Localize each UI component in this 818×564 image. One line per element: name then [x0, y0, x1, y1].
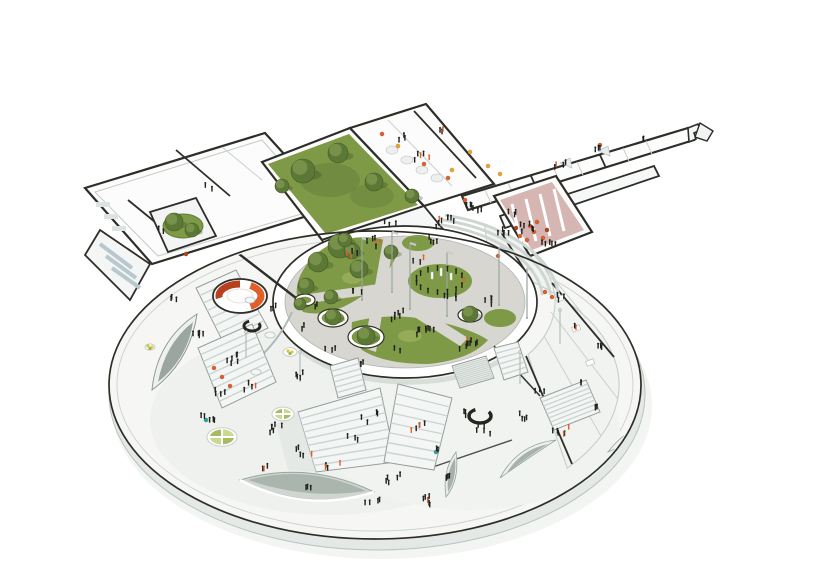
person-head	[214, 387, 216, 389]
tree-highlight	[299, 279, 309, 289]
person-head	[489, 431, 491, 433]
person-head	[441, 218, 443, 220]
tree-highlight	[166, 214, 177, 225]
person-head	[360, 414, 362, 416]
person-head	[423, 254, 425, 256]
person-head	[204, 182, 206, 184]
person-head	[461, 282, 463, 284]
person-head	[386, 474, 388, 476]
person-head	[212, 416, 214, 418]
person-head	[534, 388, 536, 390]
person-head	[303, 322, 305, 324]
person-head	[299, 375, 301, 377]
person-head	[314, 304, 316, 306]
person-head	[419, 422, 421, 424]
person-head	[459, 346, 461, 348]
tree-highlight	[276, 180, 285, 189]
person-head	[477, 208, 479, 210]
person-head	[334, 345, 336, 347]
person-head	[464, 409, 466, 411]
person-head	[477, 422, 479, 424]
person-head	[446, 266, 448, 268]
person-head	[594, 146, 596, 148]
person-head	[430, 238, 432, 240]
table-dot	[146, 344, 149, 347]
yellow-furniture-dot	[468, 150, 472, 154]
flagpole-base	[446, 315, 448, 317]
person-head	[316, 301, 318, 303]
person-head	[325, 462, 327, 464]
person-head	[476, 427, 478, 429]
person-head	[544, 241, 546, 243]
person-head	[311, 451, 313, 453]
person-head	[475, 341, 477, 343]
person-head	[403, 132, 405, 134]
person-head	[502, 226, 504, 228]
person-head	[428, 493, 430, 495]
person-head	[281, 422, 283, 424]
person-head	[442, 126, 444, 128]
person-head	[469, 202, 471, 204]
person-head	[364, 499, 366, 501]
person-head	[466, 337, 468, 339]
person-head	[524, 416, 526, 418]
person-head	[455, 268, 457, 270]
person-head	[236, 351, 238, 353]
person-head	[366, 238, 368, 240]
person-head	[372, 236, 374, 238]
person-head	[270, 306, 272, 308]
person-head	[562, 162, 564, 164]
person-head	[346, 250, 348, 252]
person-head	[295, 446, 297, 448]
person-head	[158, 225, 160, 227]
person-head	[552, 428, 554, 430]
person-head	[429, 326, 431, 328]
person-head	[507, 209, 509, 211]
person-head	[299, 451, 301, 453]
person-head	[162, 228, 164, 230]
person-head	[420, 152, 422, 154]
person-head	[388, 222, 390, 224]
person-head	[275, 302, 277, 304]
person-head	[399, 348, 401, 350]
person-head	[198, 330, 200, 332]
orange-furniture-dot	[446, 176, 450, 180]
person-head	[427, 497, 429, 499]
person-head	[375, 243, 377, 245]
person-head	[376, 411, 378, 413]
person-head	[428, 154, 430, 156]
person-head	[557, 297, 559, 299]
person-head	[455, 286, 457, 288]
person-head	[310, 485, 312, 487]
orange-furniture-dot	[422, 162, 426, 166]
yellow-furniture-dot	[498, 172, 502, 176]
tree-highlight	[186, 224, 195, 233]
person-head	[515, 209, 517, 211]
white-sculpture	[440, 268, 442, 276]
person-head	[563, 431, 565, 433]
light-pole-head	[299, 351, 302, 354]
person-head	[466, 341, 468, 343]
person-head	[274, 421, 276, 423]
table-dot	[288, 352, 291, 355]
person-head	[436, 238, 438, 240]
person-head	[483, 428, 485, 430]
person-head	[361, 289, 363, 291]
person-head	[557, 430, 559, 432]
person-head	[369, 499, 371, 501]
person-head	[255, 383, 257, 385]
person-head	[463, 277, 465, 279]
tree-highlight	[463, 307, 473, 317]
person-head	[388, 479, 390, 481]
tree-highlight	[329, 144, 341, 156]
person-head	[272, 305, 274, 307]
flagpole-base	[361, 299, 363, 301]
person-head	[356, 250, 358, 252]
yellow-furniture-dot	[396, 144, 400, 148]
person-head	[543, 388, 545, 390]
white-sculpture	[431, 272, 433, 279]
person-head	[271, 424, 273, 426]
person-head	[398, 137, 400, 139]
person-head	[417, 151, 419, 153]
person-head	[302, 369, 304, 371]
person-head	[415, 425, 417, 427]
round-table	[265, 332, 275, 338]
person-head	[439, 127, 441, 129]
person-head	[428, 234, 430, 236]
tree-highlight	[406, 190, 415, 199]
person-head	[476, 339, 478, 341]
person-head	[483, 422, 485, 424]
person-head	[446, 289, 448, 291]
person-head	[272, 427, 274, 429]
person-head	[379, 239, 381, 241]
person-head	[484, 297, 486, 299]
person-head	[520, 221, 522, 223]
person-head	[427, 288, 429, 290]
round-table	[465, 212, 475, 218]
person-head	[395, 220, 397, 222]
person-head	[414, 157, 416, 159]
person-head	[519, 410, 521, 412]
person-head	[354, 435, 356, 437]
round-table	[245, 297, 255, 303]
person-head	[436, 265, 438, 267]
person-head	[448, 473, 450, 475]
tree-highlight	[293, 160, 308, 175]
person-head	[601, 344, 603, 346]
person-head	[220, 391, 222, 393]
person-head	[295, 371, 297, 373]
kitchen-equipment	[431, 174, 443, 182]
person-head	[324, 464, 326, 466]
person-head	[175, 296, 177, 298]
tree-highlight	[326, 310, 336, 320]
person-head	[554, 241, 556, 243]
person-head	[269, 429, 271, 431]
person-head	[568, 424, 570, 426]
person-head	[438, 220, 440, 222]
architectural-rendering	[0, 0, 818, 564]
person-head	[556, 292, 558, 294]
orange-furniture-dot	[212, 366, 216, 370]
white-sculpture	[450, 273, 452, 280]
orange-furniture-dot	[463, 198, 467, 202]
person-head	[248, 380, 250, 382]
person-head	[555, 161, 557, 163]
person-head	[243, 387, 245, 389]
tree-highlight	[295, 298, 302, 305]
red-furniture-dot	[545, 228, 549, 232]
person-head	[424, 420, 426, 422]
person-head	[455, 292, 457, 294]
person-head	[595, 404, 597, 406]
person-head	[580, 380, 582, 382]
flagpole-base	[526, 317, 528, 319]
person-head	[422, 496, 424, 498]
person-head	[490, 301, 492, 303]
courtyard-lawn-east	[484, 309, 516, 327]
orange-furniture-dot	[518, 234, 522, 238]
person-head	[410, 427, 412, 429]
flagpole-base	[498, 304, 500, 306]
yellow-furniture-dot	[486, 164, 490, 168]
person-head	[266, 463, 268, 465]
person-head	[556, 428, 558, 430]
person-head	[200, 412, 202, 414]
person-head	[301, 326, 303, 328]
person-head	[366, 419, 368, 421]
person-head	[419, 259, 421, 261]
kitchen-equipment	[401, 156, 413, 164]
person-head	[465, 202, 467, 204]
person-head	[526, 414, 528, 416]
person-head	[427, 325, 429, 327]
person-head	[447, 214, 449, 216]
person-head	[551, 240, 553, 242]
person-head	[491, 295, 493, 297]
person-head	[393, 345, 395, 347]
person-head	[297, 444, 299, 446]
person-head	[532, 226, 534, 228]
person-head	[427, 267, 429, 269]
person-head	[231, 355, 233, 357]
person-head	[251, 384, 253, 386]
person-head	[171, 294, 173, 296]
person-head	[224, 389, 226, 391]
person-head	[394, 312, 396, 314]
person-head	[425, 326, 427, 328]
person-head	[599, 145, 601, 147]
person-head	[521, 416, 523, 418]
person-head	[360, 361, 362, 363]
person-head	[384, 218, 386, 220]
person-head	[574, 323, 576, 325]
person-head	[461, 272, 463, 274]
person-head	[412, 258, 414, 260]
person-head	[539, 386, 541, 388]
flagpole-base	[409, 308, 411, 310]
person-head	[399, 471, 401, 473]
person-head	[391, 316, 393, 318]
red-furniture-dot	[184, 252, 188, 256]
person-head	[192, 330, 194, 332]
person-head	[402, 308, 404, 310]
person-head	[418, 326, 420, 328]
orange-furniture-dot	[525, 238, 529, 242]
person-head	[450, 215, 452, 217]
tree-highlight	[325, 291, 334, 300]
person-head	[352, 288, 354, 290]
person-head	[435, 224, 437, 226]
person-head	[399, 313, 401, 315]
person-head	[327, 465, 329, 467]
flagpole-base	[391, 291, 393, 293]
light-pole-head	[245, 331, 248, 334]
person-head	[324, 346, 326, 348]
person-head	[357, 437, 359, 439]
library-shelf	[96, 202, 110, 207]
person-head	[508, 230, 510, 232]
tree-highlight	[339, 234, 348, 243]
library-shelf	[112, 226, 126, 231]
person-head	[565, 159, 567, 161]
person-head	[424, 494, 426, 496]
person-head	[429, 502, 431, 504]
person-head	[438, 216, 440, 218]
orange-furniture-dot	[380, 132, 384, 136]
person-head	[302, 453, 304, 455]
person-head	[643, 136, 645, 138]
person-head	[211, 186, 213, 188]
person-head	[226, 357, 228, 359]
person-head	[423, 151, 425, 153]
person-head	[480, 206, 482, 208]
person-head	[436, 445, 438, 447]
table-dot	[286, 349, 289, 352]
person-head	[554, 164, 556, 166]
kitchen-equipment	[416, 166, 428, 174]
person-head	[541, 239, 543, 241]
person-head	[597, 343, 599, 345]
person-head	[209, 417, 211, 419]
orange-furniture-dot	[228, 384, 232, 388]
person-head	[436, 289, 438, 291]
person-head	[396, 475, 398, 477]
table-dot	[148, 347, 151, 350]
person-head	[453, 218, 455, 220]
person-head	[433, 239, 435, 241]
person-head	[339, 460, 341, 462]
red-furniture-dot	[514, 226, 518, 230]
person-head	[215, 390, 217, 392]
person-head	[362, 359, 364, 361]
person-head	[379, 497, 381, 499]
person-head	[305, 484, 307, 486]
person-head	[521, 228, 523, 230]
orange-round-room	[213, 279, 267, 313]
person-head	[347, 433, 349, 435]
tree-highlight	[366, 174, 377, 185]
person-head	[446, 474, 448, 476]
person-head	[549, 239, 551, 241]
person-head	[416, 275, 418, 277]
tree-highlight	[309, 253, 321, 265]
person-head	[497, 230, 499, 232]
person-head	[433, 327, 435, 329]
library-shelf	[104, 214, 118, 219]
person-head	[331, 347, 333, 349]
person-head	[470, 337, 472, 339]
person-head	[397, 310, 399, 312]
person-head	[523, 223, 525, 225]
person-head	[563, 293, 565, 295]
person-head	[420, 270, 422, 272]
person-head	[202, 331, 204, 333]
light-pole-head	[519, 351, 522, 354]
person-head	[394, 314, 396, 316]
tree-highlight	[358, 328, 369, 339]
person-head	[237, 358, 239, 360]
person-head	[263, 466, 265, 468]
person-head	[443, 293, 445, 295]
yellow-furniture-dot	[450, 168, 454, 172]
person-head	[351, 248, 353, 250]
tree-highlight	[351, 261, 362, 272]
round-table	[251, 369, 261, 375]
person-head	[374, 235, 376, 237]
light-pole-head	[559, 309, 562, 312]
orange-furniture-dot	[550, 295, 554, 299]
person-head	[420, 284, 422, 286]
person-head	[529, 221, 531, 223]
orange-furniture-dot	[220, 375, 224, 379]
person-head	[472, 205, 474, 207]
orange-furniture-dot	[543, 290, 547, 294]
orange-furniture-dot	[535, 220, 539, 224]
person-head	[203, 413, 205, 415]
